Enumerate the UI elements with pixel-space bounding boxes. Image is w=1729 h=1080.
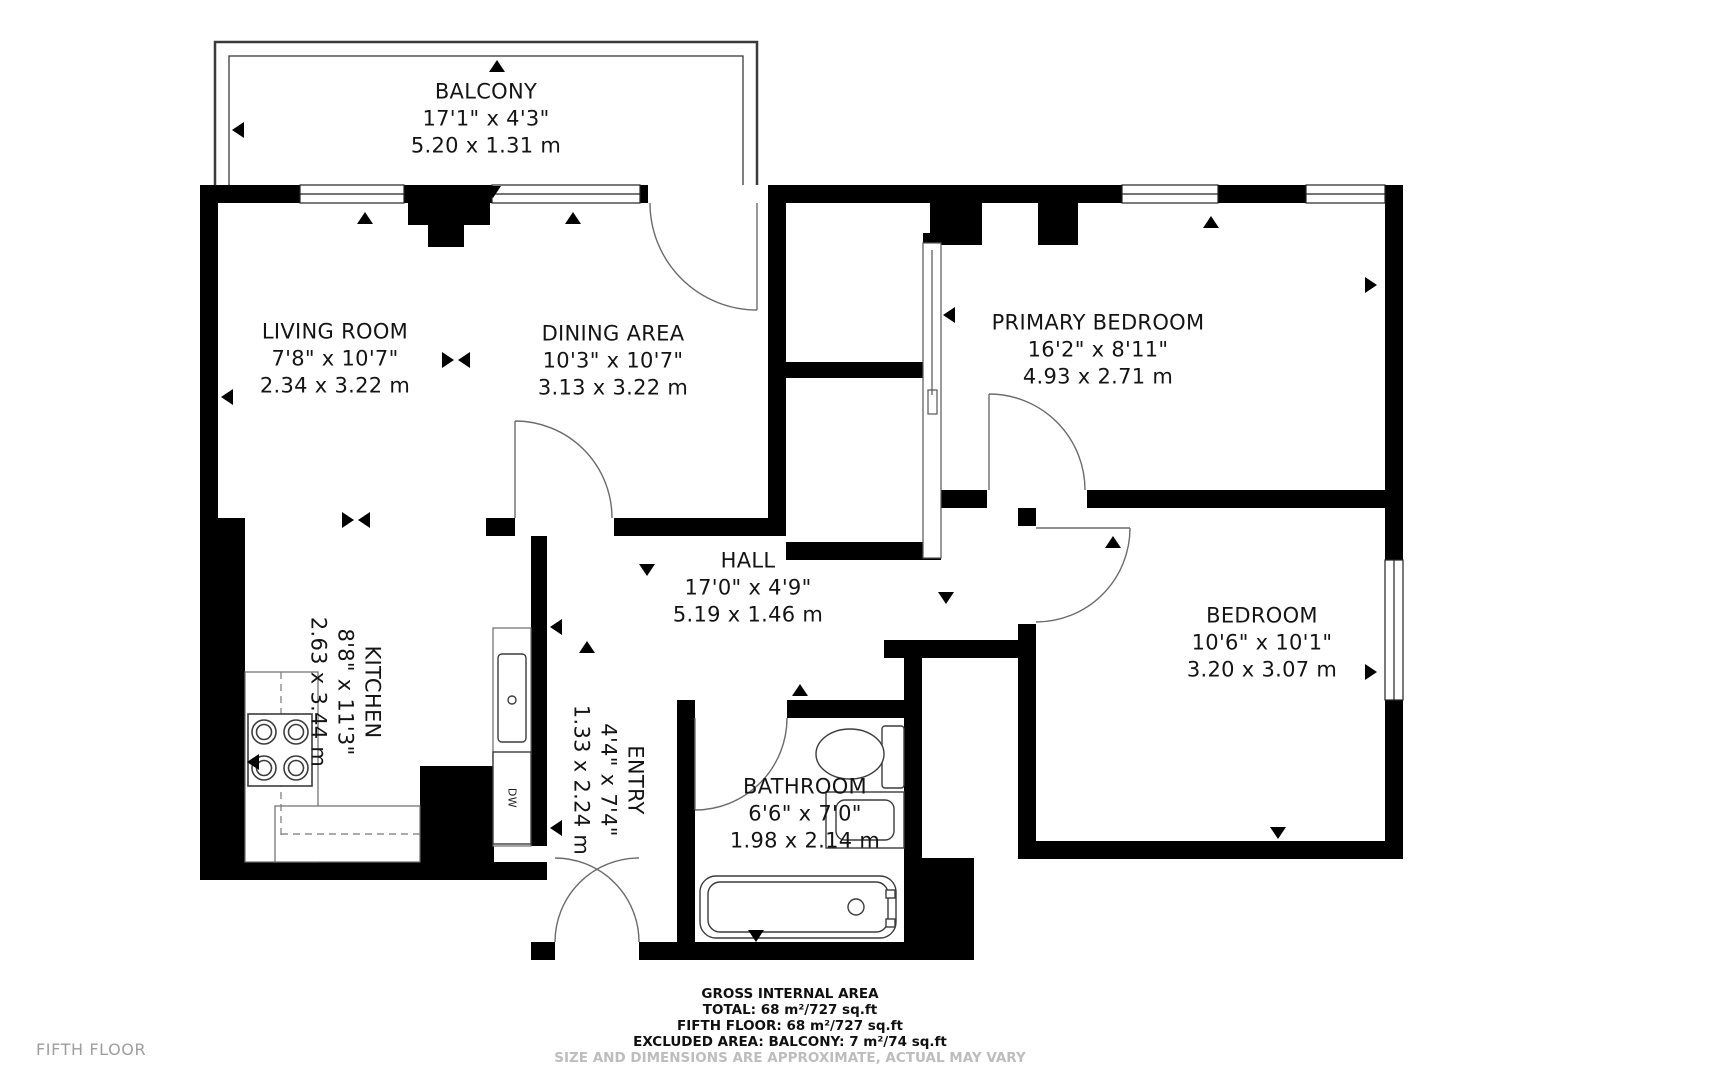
stove-icon [248, 714, 312, 786]
room-label-balcony: BALCONY 17'1" x 4'3" 5.20 x 1.31 m [411, 79, 561, 160]
balcony-door [650, 203, 757, 310]
wall-bottom-kitchen [200, 862, 547, 880]
room-dims-imperial: 4'4" x 7'4" [595, 705, 622, 855]
room-name: DINING AREA [538, 321, 688, 348]
dimension-arrow [565, 212, 581, 224]
room-dims-metric: 1.98 x 2.14 m [730, 828, 880, 855]
dimension-arrow [1270, 827, 1286, 839]
room-name: LIVING ROOM [260, 319, 410, 346]
dimension-arrow [357, 212, 373, 224]
bathtub-icon [700, 876, 896, 938]
dining-door-opening [515, 518, 614, 536]
dimension-arrow [442, 352, 454, 368]
room-name: ENTRY [622, 705, 649, 855]
window-living [300, 185, 404, 203]
room-dims-imperial: 17'0" x 4'9" [673, 575, 823, 602]
wall-bedroom-bottom [1018, 841, 1403, 859]
room-dims-metric: 2.63 x 3.44 m [305, 617, 332, 767]
room-name: HALL [673, 548, 823, 575]
dimension-arrow [342, 512, 354, 528]
dimension-arrow [938, 592, 954, 604]
window-bedroom [1385, 560, 1403, 700]
dimension-arrow [1203, 216, 1219, 228]
room-label-hall: HALL 17'0" x 4'9" 5.19 x 1.46 m [673, 548, 823, 629]
wall-bath-right [904, 700, 922, 858]
area-summary-heading: GROSS INTERNAL AREA [554, 986, 1026, 1002]
window-primary-1 [1122, 185, 1218, 203]
dimension-arrow [943, 307, 955, 323]
room-dims-metric: 3.20 x 3.07 m [1187, 657, 1337, 684]
primary-door-opening [987, 490, 1087, 508]
room-dims-imperial: 10'3" x 10'7" [538, 348, 688, 375]
dimension-arrow [232, 122, 244, 138]
dimension-arrow [579, 641, 595, 653]
room-name: BALCONY [411, 79, 561, 106]
balcony-door-opening [648, 185, 768, 203]
area-summary-disclaimer: SIZE AND DIMENSIONS ARE APPROXIMATE, ACT… [554, 1050, 1026, 1066]
bedroom-door-opening [1018, 526, 1036, 624]
dimension-arrow [1105, 536, 1121, 548]
dining-door [515, 421, 612, 518]
room-name: BEDROOM [1187, 603, 1337, 630]
room-name: PRIMARY BEDROOM [992, 310, 1205, 337]
room-label-kitchen: KITCHEN 8'8" x 11'3" 2.63 x 3.44 m [305, 617, 386, 767]
dimension-arrow [550, 820, 562, 836]
floor-title: FIFTH FLOOR [36, 1040, 146, 1059]
room-label-entry: ENTRY 4'4" x 7'4" 1.33 x 2.24 m [568, 705, 649, 855]
area-summary: GROSS INTERNAL AREA TOTAL: 68 m²/727 sq.… [554, 986, 1026, 1066]
room-dims-imperial: 16'2" x 8'11" [992, 337, 1205, 364]
wall-bath-left [677, 700, 695, 942]
room-dims-metric: 3.13 x 3.22 m [538, 375, 688, 402]
room-dims-metric: 5.20 x 1.31 m [411, 133, 561, 160]
dimension-arrow [489, 60, 505, 72]
dimension-arrow [639, 564, 655, 576]
room-dims-imperial: 7'8" x 10'7" [260, 346, 410, 373]
kitchen-sink-icon [498, 654, 526, 742]
dishwasher-label: DW [506, 788, 519, 808]
bathroom-door-opening [695, 700, 787, 718]
room-label-dining-area: DINING AREA 10'3" x 10'7" 3.13 x 3.22 m [538, 321, 688, 402]
dimension-arrow [792, 684, 808, 696]
room-dims-metric: 2.34 x 3.22 m [260, 373, 410, 400]
room-dims-metric: 4.93 x 2.71 m [992, 364, 1205, 391]
room-label-living-room: LIVING ROOM 7'8" x 10'7" 2.34 x 3.22 m [260, 319, 410, 400]
room-label-primary-bedroom: PRIMARY BEDROOM 16'2" x 8'11" 4.93 x 2.7… [992, 310, 1205, 391]
wall-kitchen-right [531, 536, 547, 846]
wall-living-stub [428, 203, 464, 247]
wall-left-kitchen [218, 518, 245, 753]
pocket-door [923, 243, 941, 558]
room-dims-metric: 1.33 x 2.24 m [568, 705, 595, 855]
area-summary-floor: FIFTH FLOOR: 68 m²/727 sq.ft [554, 1018, 1026, 1034]
wall-bath-connector [904, 640, 922, 718]
primary-bedroom-door [989, 394, 1085, 490]
area-summary-total: TOTAL: 68 m²/727 sq.ft [554, 1002, 1026, 1018]
floor-plan-canvas: BALCONY 17'1" x 4'3" 5.20 x 1.31 m LIVIN… [0, 0, 1729, 1080]
dimension-arrow [1365, 277, 1377, 293]
dimension-arrow [458, 352, 470, 368]
room-name: BATHROOM [730, 774, 880, 801]
dimension-arrow [221, 389, 233, 405]
room-name: KITCHEN [359, 617, 386, 767]
room-dims-imperial: 17'1" x 4'3" [411, 106, 561, 133]
entry-door [555, 858, 639, 942]
room-label-bathroom: BATHROOM 6'6" x 7'0" 1.98 x 2.14 m [730, 774, 880, 855]
room-dims-metric: 5.19 x 1.46 m [673, 602, 823, 629]
window-primary-2 [1306, 185, 1385, 203]
entry-door-opening [555, 942, 639, 960]
room-label-bedroom: BEDROOM 10'6" x 10'1" 3.20 x 3.07 m [1187, 603, 1337, 684]
dimension-arrow [358, 512, 370, 528]
wall-pillar [1038, 203, 1078, 245]
floor-plan-drawing [0, 0, 1729, 1080]
wall-kitchen-se [420, 766, 494, 880]
window-dining [492, 185, 640, 203]
dimension-arrow [550, 619, 562, 635]
wall-closet-top [768, 362, 941, 378]
dimension-arrow [1365, 664, 1377, 680]
room-dims-imperial: 10'6" x 10'1" [1187, 630, 1337, 657]
room-dims-imperial: 6'6" x 7'0" [730, 801, 880, 828]
room-dims-imperial: 8'8" x 11'3" [332, 617, 359, 767]
wall-right [1385, 185, 1403, 859]
area-summary-excluded: EXCLUDED AREA: BALCONY: 7 m²/74 sq.ft [554, 1034, 1026, 1050]
